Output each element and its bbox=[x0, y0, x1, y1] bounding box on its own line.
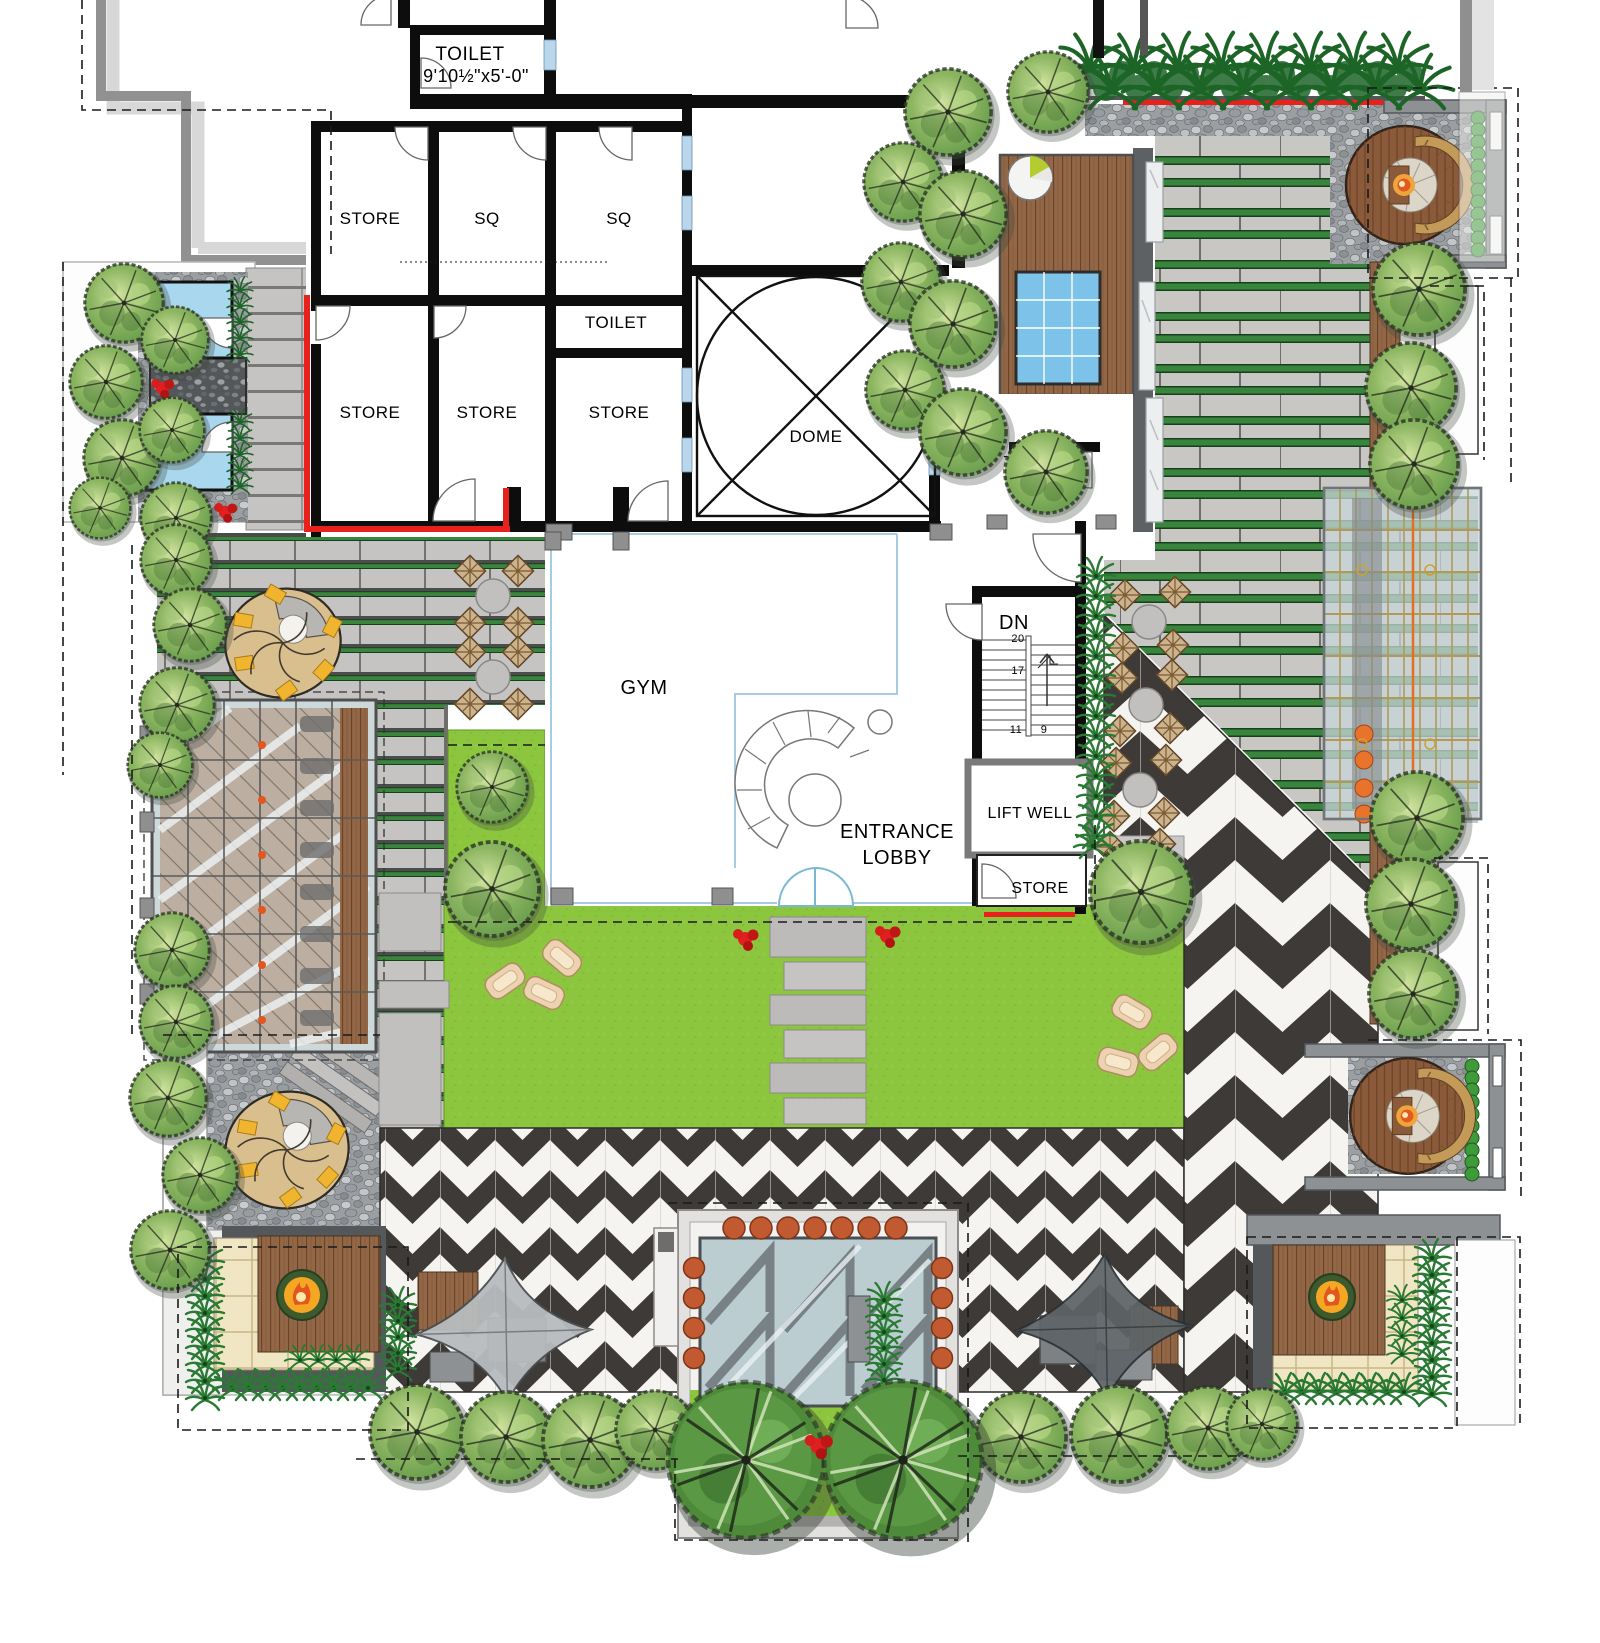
svg-text:9: 9 bbox=[1041, 724, 1048, 736]
svg-text:STORE: STORE bbox=[340, 209, 401, 228]
svg-text:GYM: GYM bbox=[620, 677, 667, 699]
svg-text:TOILET: TOILET bbox=[585, 313, 647, 332]
svg-text:TOILET: TOILET bbox=[435, 44, 504, 65]
svg-text:DN: DN bbox=[999, 612, 1029, 634]
svg-text:STORE: STORE bbox=[340, 403, 401, 422]
svg-text:SQ: SQ bbox=[474, 209, 500, 228]
svg-text:LIFT WELL: LIFT WELL bbox=[987, 805, 1072, 822]
svg-text:ENTRANCE: ENTRANCE bbox=[840, 821, 954, 843]
svg-text:STORE: STORE bbox=[457, 403, 518, 422]
svg-text:STORE: STORE bbox=[1011, 880, 1068, 897]
svg-text:SQ: SQ bbox=[606, 209, 632, 228]
svg-text:DOME: DOME bbox=[790, 427, 843, 446]
svg-text:11: 11 bbox=[1010, 724, 1022, 736]
svg-text:17: 17 bbox=[1011, 665, 1024, 677]
svg-text:STORE: STORE bbox=[589, 403, 650, 422]
svg-text:9'10½"x5'-0": 9'10½"x5'-0" bbox=[423, 66, 529, 86]
svg-text:20: 20 bbox=[1011, 633, 1024, 645]
svg-text:LOBBY: LOBBY bbox=[862, 847, 931, 869]
